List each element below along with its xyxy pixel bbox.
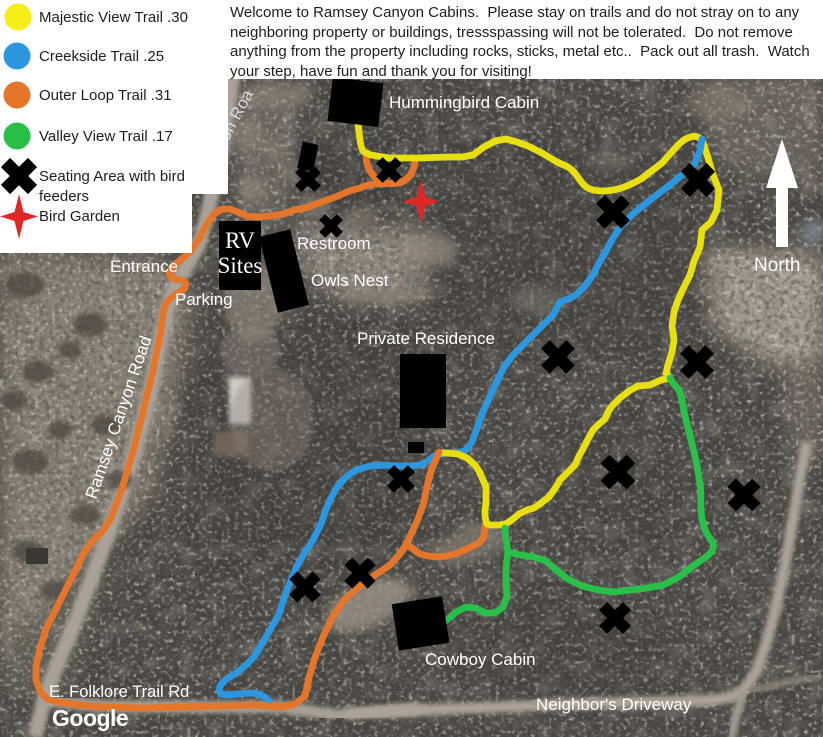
svg-text:Cowboy Cabin: Cowboy Cabin	[425, 650, 536, 669]
svg-text:Owls Nest: Owls Nest	[311, 271, 389, 290]
svg-text:Majestic View Trail .30: Majestic View Trail .30	[39, 9, 188, 26]
svg-text:Creekside Trail .25: Creekside Trail .25	[39, 48, 164, 65]
svg-text:Google: Google	[52, 705, 128, 731]
svg-text:RV: RV	[225, 228, 255, 253]
svg-text:Outer Loop Trail .31: Outer Loop Trail .31	[39, 87, 172, 104]
svg-text:feeders: feeders	[39, 188, 89, 205]
svg-text:E. Folklore Trail Rd: E. Folklore Trail Rd	[49, 683, 189, 701]
svg-text:Entrance: Entrance	[110, 257, 178, 276]
svg-text:Bird Garden: Bird Garden	[39, 208, 120, 225]
svg-text:Valley View Trail .17: Valley View Trail .17	[39, 128, 173, 145]
svg-text:Hummingbird Cabin: Hummingbird Cabin	[389, 93, 539, 112]
svg-text:North: North	[754, 255, 800, 276]
svg-text:Parking: Parking	[175, 290, 233, 309]
svg-text:Private Residence: Private Residence	[357, 329, 495, 348]
svg-text:Sites: Sites	[218, 253, 263, 278]
svg-text:Neighbor's Driveway: Neighbor's Driveway	[536, 695, 692, 714]
svg-text:Seating Area with bird: Seating Area with bird	[39, 168, 185, 185]
svg-text:Restroom: Restroom	[297, 234, 371, 253]
